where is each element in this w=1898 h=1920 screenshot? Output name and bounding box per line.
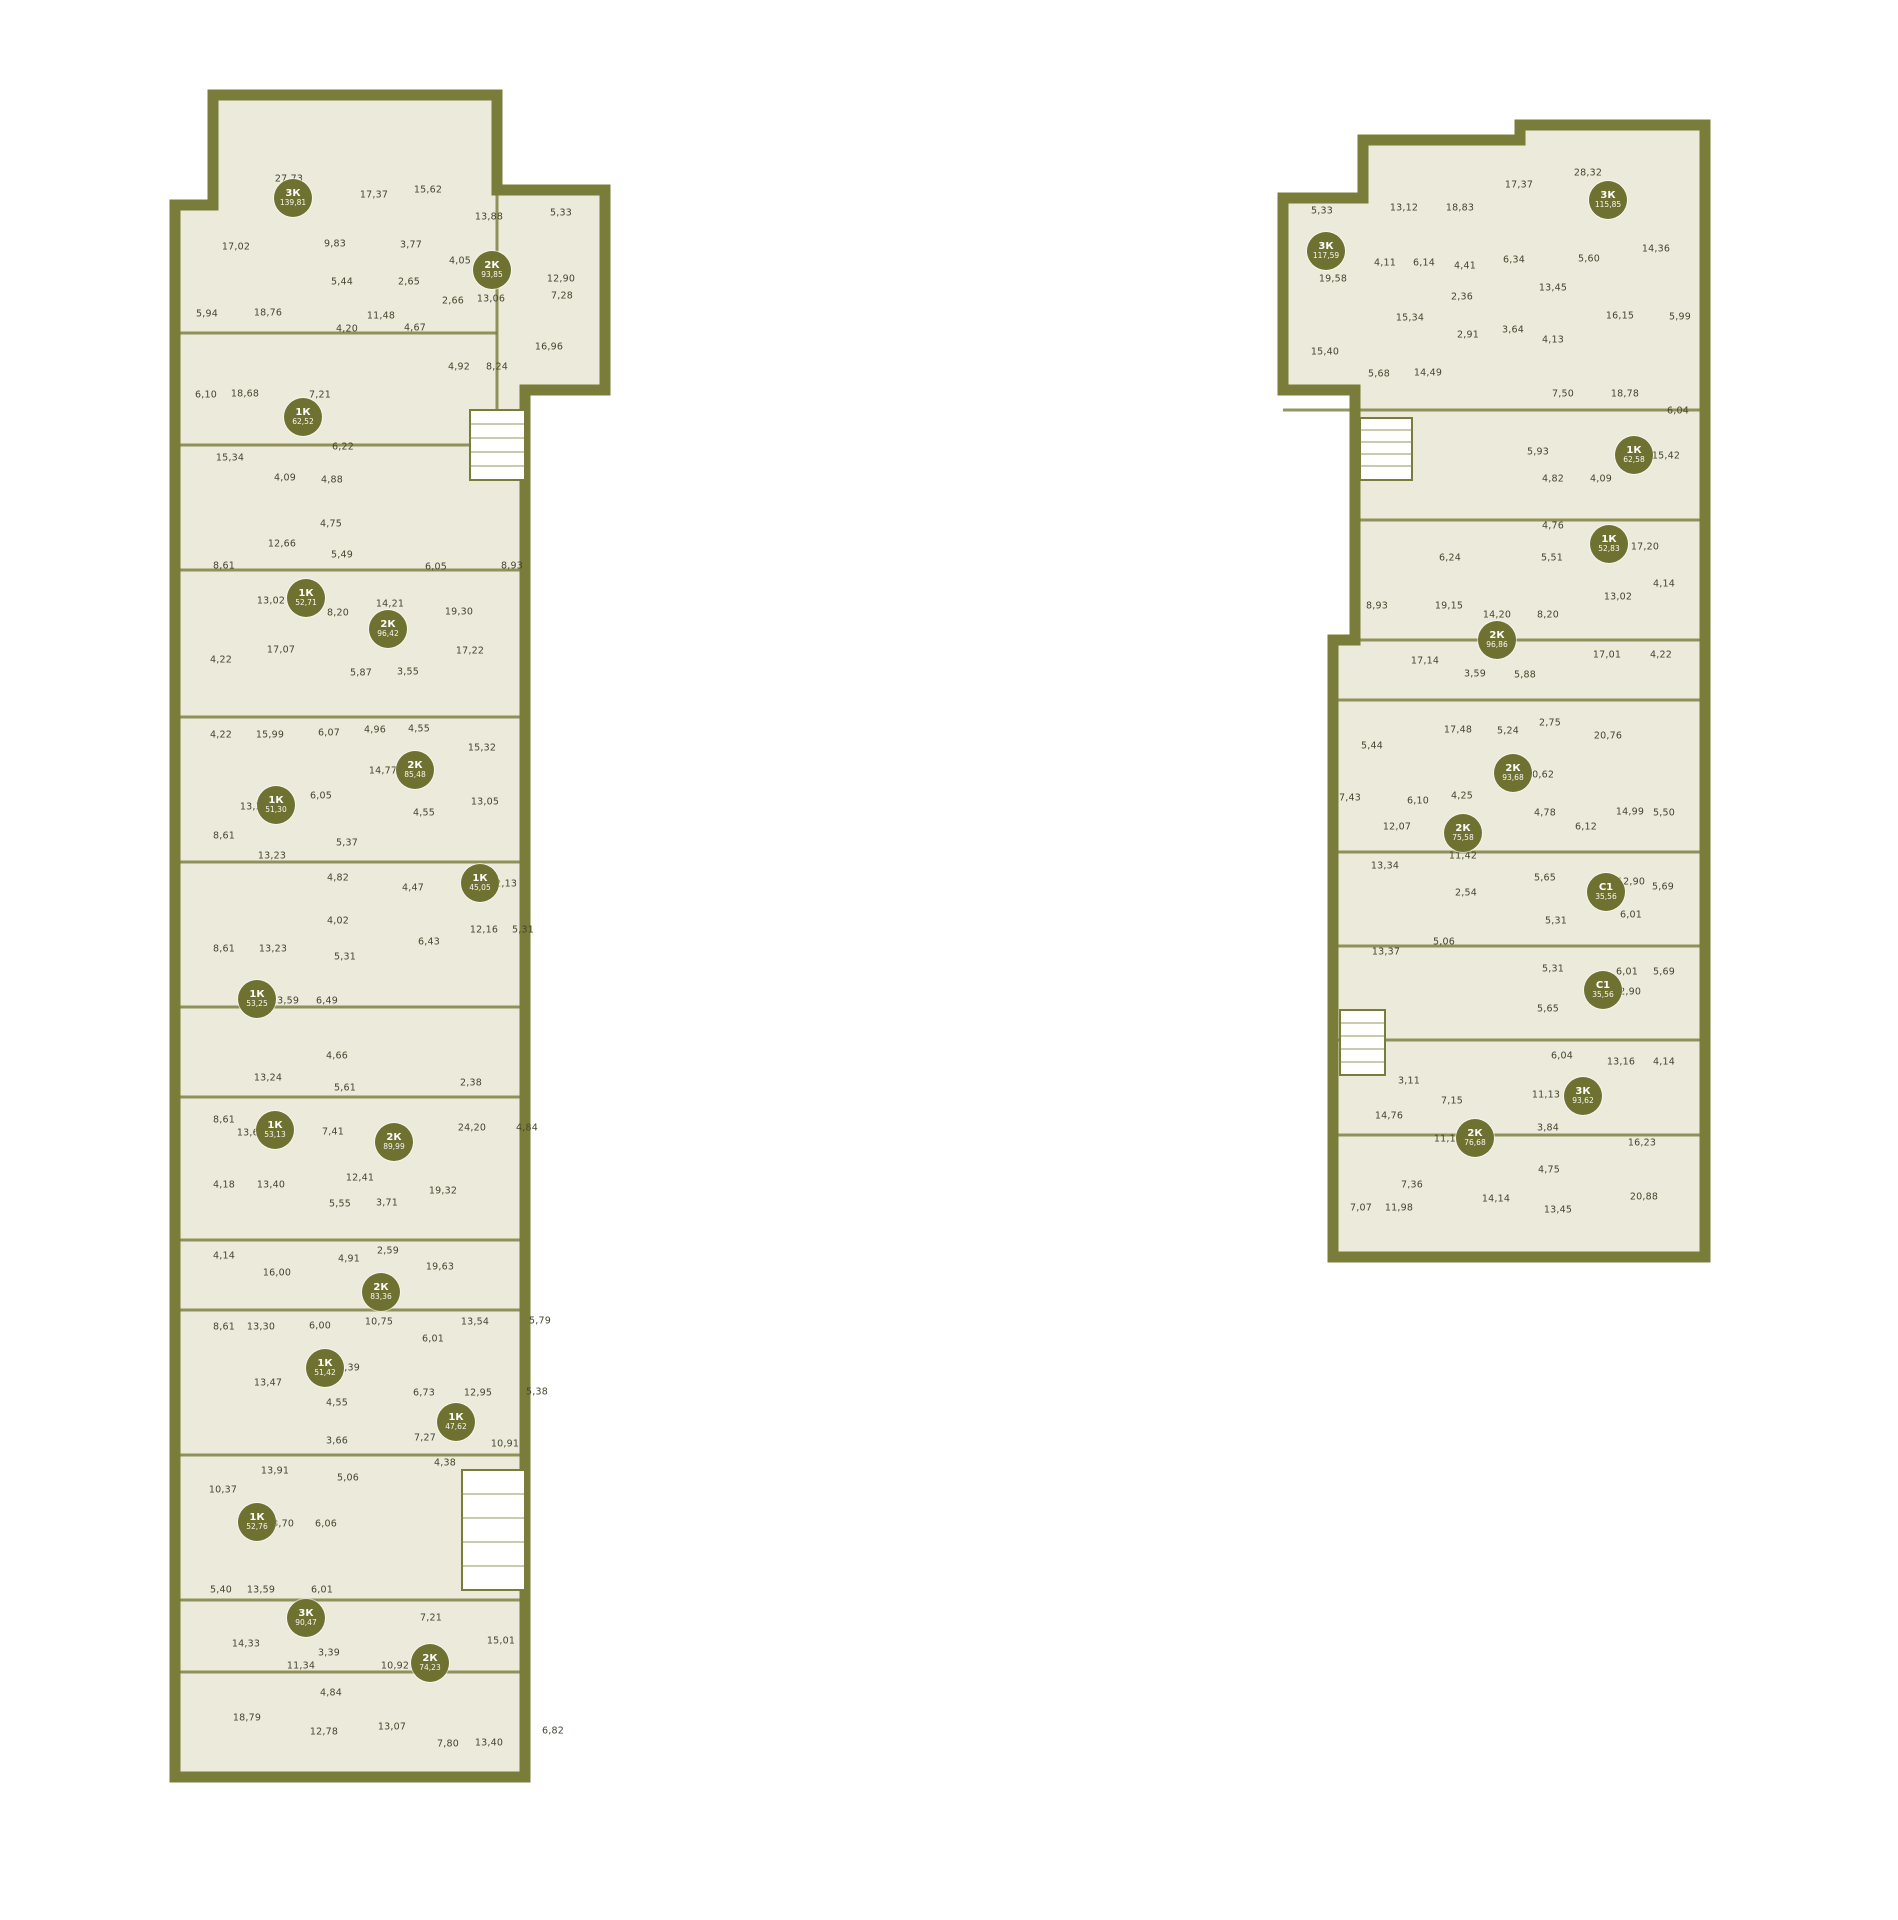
apartment-badge[interactable]: 2К85,48: [396, 751, 434, 789]
room-area-label: 5,79: [529, 1316, 551, 1327]
room-area-label: 8,93: [501, 561, 523, 572]
room-area-label: 15,62: [414, 185, 442, 196]
room-area-label: 17,48: [1444, 725, 1472, 736]
apartment-badge[interactable]: 3К117,59: [1307, 232, 1345, 270]
room-area-label: 11,42: [1449, 851, 1477, 862]
apartment-area: 93,85: [481, 271, 502, 279]
room-area-label: 2,38: [460, 1078, 482, 1089]
apartment-area: 93,68: [1502, 774, 1523, 782]
room-area-label: 6,10: [195, 390, 217, 401]
room-area-label: 11,98: [1385, 1203, 1413, 1214]
room-area-label: 18,68: [231, 389, 259, 400]
room-area-label: 5,94: [196, 309, 218, 320]
room-area-label: 6,01: [1616, 967, 1638, 978]
room-area-label: 11,34: [287, 1661, 315, 1672]
room-area-label: 6,14: [1413, 258, 1435, 269]
room-area-label: 8,61: [213, 1322, 235, 1333]
room-area-label: 14,14: [1482, 1194, 1510, 1205]
apartment-badge[interactable]: 2К93,68: [1494, 754, 1532, 792]
room-area-label: 6,06: [315, 1519, 337, 1530]
stair-core: [1360, 418, 1412, 480]
apartment-badge[interactable]: 2К96,42: [369, 610, 407, 648]
room-area-label: 4,38: [434, 1458, 456, 1469]
apartment-badge[interactable]: 3К93,62: [1564, 1077, 1602, 1115]
room-area-label: 4,22: [1650, 650, 1672, 661]
room-area-label: 15,42: [1652, 451, 1680, 462]
room-area-label: 5,99: [1669, 312, 1691, 323]
room-area-label: 3,64: [1502, 325, 1524, 336]
apartment-area: 52,76: [246, 1523, 267, 1531]
room-area-label: 3,84: [1537, 1123, 1559, 1134]
room-area-label: 17,01: [1593, 650, 1621, 661]
room-area-label: 4,05: [449, 256, 471, 267]
room-area-label: 2,59: [377, 1246, 399, 1257]
room-area-label: 7,07: [1350, 1203, 1372, 1214]
room-area-label: 17,02: [222, 242, 250, 253]
apartment-area: 85,48: [404, 771, 425, 779]
apartment-badge[interactable]: 2К89,99: [375, 1123, 413, 1161]
apartment-area: 47,62: [445, 1423, 466, 1431]
room-area-label: 14,20: [1483, 610, 1511, 621]
room-area-label: 5,65: [1534, 873, 1556, 884]
room-area-label: 17,14: [1411, 656, 1439, 667]
room-area-label: 18,83: [1446, 203, 1474, 214]
room-area-label: 8,61: [213, 561, 235, 572]
room-area-label: 8,61: [213, 1115, 235, 1126]
room-area-label: 5,37: [336, 838, 358, 849]
room-area-label: 13,40: [257, 1180, 285, 1191]
room-area-label: 4,88: [321, 475, 343, 486]
room-area-label: 10,37: [209, 1485, 237, 1496]
room-area-label: 6,07: [318, 728, 340, 739]
room-area-label: 10,91: [491, 1439, 519, 1450]
room-area-label: 15,32: [468, 743, 496, 754]
room-area-label: 13,59: [247, 1585, 275, 1596]
room-area-label: 5,87: [350, 668, 372, 679]
room-area-label: 13,05: [471, 797, 499, 808]
room-area-label: 4,92: [448, 362, 470, 373]
apartment-badge[interactable]: 3К90,47: [287, 1599, 325, 1637]
room-area-label: 14,76: [1375, 1111, 1403, 1122]
building-right-outline: [1283, 125, 1705, 1257]
room-area-label: 14,36: [1642, 244, 1670, 255]
room-area-label: 20,76: [1594, 731, 1622, 742]
room-area-label: 7,36: [1401, 1180, 1423, 1191]
room-area-label: 17,37: [1505, 180, 1533, 191]
room-area-label: 13,07: [378, 1722, 406, 1733]
room-area-label: 4,25: [1451, 791, 1473, 802]
room-area-label: 5,93: [1527, 447, 1549, 458]
room-area-label: 16,00: [263, 1268, 291, 1279]
room-area-label: 5,31: [1542, 964, 1564, 975]
room-area-label: 11,13: [1532, 1090, 1560, 1101]
apartment-area: 90,47: [295, 1619, 316, 1627]
room-area-label: 4,20: [336, 324, 358, 335]
room-area-label: 7,50: [1552, 389, 1574, 400]
room-area-label: 5,49: [331, 550, 353, 561]
apartment-area: 93,62: [1572, 1097, 1593, 1105]
room-area-label: 6,22: [332, 442, 354, 453]
room-area-label: 13,16: [1607, 1057, 1635, 1068]
apartment-area: 75,58: [1452, 834, 1473, 842]
room-area-label: 13,23: [258, 851, 286, 862]
room-area-label: 17,07: [267, 645, 295, 656]
apartment-area: 96,42: [377, 630, 398, 638]
room-area-label: 4,02: [327, 916, 349, 927]
room-area-label: 13,47: [254, 1378, 282, 1389]
apartment-badge[interactable]: 1К51,42: [306, 1349, 344, 1387]
room-area-label: 7,43: [1339, 793, 1361, 804]
room-area-label: 13,45: [1544, 1205, 1572, 1216]
room-area-label: 4,84: [516, 1123, 538, 1134]
room-area-label: 15,34: [216, 453, 244, 464]
room-area-label: 8,24: [486, 362, 508, 373]
room-area-label: 5,50: [1653, 808, 1675, 819]
room-area-label: 6,12: [1575, 822, 1597, 833]
apartment-area: 62,52: [292, 418, 313, 426]
apartment-badge[interactable]: 2К96,86: [1478, 621, 1516, 659]
room-area-label: 19,32: [429, 1186, 457, 1197]
room-area-label: 13,40: [475, 1738, 503, 1749]
room-area-label: 5,65: [1537, 1004, 1559, 1015]
room-area-label: 6,04: [1667, 406, 1689, 417]
room-area-label: 15,01: [487, 1636, 515, 1647]
room-area-label: 6,34: [1503, 255, 1525, 266]
apartment-area: 76,68: [1464, 1139, 1485, 1147]
room-area-label: 6,00: [309, 1321, 331, 1332]
room-area-label: 13,91: [261, 1466, 289, 1477]
room-area-label: 3,11: [1398, 1076, 1420, 1087]
room-area-label: 14,21: [376, 599, 404, 610]
apartment-badge[interactable]: 2К76,68: [1456, 1119, 1494, 1157]
room-area-label: 19,30: [445, 607, 473, 618]
room-area-label: 3,39: [318, 1648, 340, 1659]
room-area-label: 20,88: [1630, 1192, 1658, 1203]
room-area-label: 16,96: [535, 342, 563, 353]
room-area-label: 8,20: [1537, 610, 1559, 621]
room-area-label: 5,69: [1653, 967, 1675, 978]
room-area-label: 4,55: [413, 808, 435, 819]
apartment-badge[interactable]: 1К47,62: [437, 1403, 475, 1441]
room-area-label: 13,88: [475, 212, 503, 223]
room-area-label: 13,12: [1390, 203, 1418, 214]
room-area-label: 2,54: [1455, 888, 1477, 899]
room-area-label: 24,20: [458, 1123, 486, 1134]
room-area-label: 2,66: [442, 296, 464, 307]
room-area-label: 14,49: [1414, 368, 1442, 379]
apartment-area: 52,71: [295, 599, 316, 607]
apartment-badge[interactable]: 1К52,71: [287, 579, 325, 617]
room-area-label: 14,99: [1616, 807, 1644, 818]
room-area-label: 7,41: [322, 1127, 344, 1138]
apartment-area: 51,30: [265, 806, 286, 814]
room-area-label: 4,14: [1653, 1057, 1675, 1068]
apartment-badge[interactable]: 1К53,25: [238, 980, 276, 1018]
apartment-badge[interactable]: 2К74,23: [411, 1644, 449, 1682]
apartment-area: 35,56: [1595, 893, 1616, 901]
room-area-label: 4,55: [408, 724, 430, 735]
room-area-label: 13,30: [247, 1322, 275, 1333]
apartment-badge[interactable]: 1К53,13: [256, 1111, 294, 1149]
room-area-label: 12,90: [547, 274, 575, 285]
room-area-label: 5,68: [1368, 369, 1390, 380]
room-area-label: 10,75: [365, 1317, 393, 1328]
room-area-label: 13,23: [259, 944, 287, 955]
room-area-label: 2,65: [398, 277, 420, 288]
apartment-badge[interactable]: С135,56: [1587, 873, 1625, 911]
room-area-label: 4,66: [326, 1051, 348, 1062]
apartment-area: 115,85: [1595, 201, 1621, 209]
stair-core: [1340, 1010, 1385, 1075]
room-area-label: 4,41: [1454, 261, 1476, 272]
room-area-label: 5,33: [550, 208, 572, 219]
room-area-label: 3,77: [400, 240, 422, 251]
apartment-area: 45,05: [469, 884, 490, 892]
room-area-label: 5,31: [1545, 916, 1567, 927]
room-area-label: 4,82: [327, 873, 349, 884]
room-area-label: 13,37: [1372, 947, 1400, 958]
room-area-label: 5,88: [1514, 670, 1536, 681]
apartment-area: 117,59: [1313, 252, 1339, 260]
room-area-label: 5,33: [1311, 206, 1333, 217]
room-area-label: 4,22: [210, 655, 232, 666]
room-area-label: 4,76: [1542, 521, 1564, 532]
room-area-label: 5,61: [334, 1083, 356, 1094]
room-area-label: 15,34: [1396, 313, 1424, 324]
room-area-label: 12,07: [1383, 822, 1411, 833]
room-area-label: 5,44: [331, 277, 353, 288]
apartment-area: 62,58: [1623, 456, 1644, 464]
room-area-label: 19,63: [426, 1262, 454, 1273]
room-area-label: 13,02: [1604, 592, 1632, 603]
room-area-label: 4,14: [213, 1251, 235, 1262]
room-area-label: 17,37: [360, 190, 388, 201]
room-area-label: 15,99: [256, 730, 284, 741]
apartment-badge[interactable]: 3К115,85: [1589, 181, 1627, 219]
room-area-label: 14,77: [369, 766, 397, 777]
room-area-label: 5,31: [512, 925, 534, 936]
room-area-label: 13,24: [254, 1073, 282, 1084]
room-area-label: 3,55: [397, 667, 419, 678]
room-area-label: 6,49: [316, 996, 338, 1007]
room-area-label: 7,28: [551, 291, 573, 302]
apartment-badge[interactable]: 1К62,52: [284, 398, 322, 436]
room-area-label: 28,32: [1574, 168, 1602, 179]
room-area-label: 3,66: [326, 1436, 348, 1447]
room-area-label: 6,73: [413, 1388, 435, 1399]
room-area-label: 18,79: [233, 1713, 261, 1724]
stair-core: [470, 410, 525, 480]
room-area-label: 6,24: [1439, 553, 1461, 564]
room-area-label: 4,82: [1542, 474, 1564, 485]
room-area-label: 6,04: [1551, 1051, 1573, 1062]
room-area-label: 7,15: [1441, 1096, 1463, 1107]
room-area-label: 12,41: [346, 1173, 374, 1184]
apartment-area: 35,56: [1592, 991, 1613, 999]
room-area-label: 4,14: [1653, 579, 1675, 590]
apartment-badge[interactable]: С135,56: [1584, 971, 1622, 1009]
room-area-label: 19,58: [1319, 274, 1347, 285]
room-area-label: 6,05: [310, 791, 332, 802]
stair-core: [462, 1470, 525, 1590]
apartment-area: 139,81: [280, 199, 306, 207]
room-area-label: 6,82: [542, 1726, 564, 1737]
room-area-label: 5,69: [1652, 882, 1674, 893]
room-area-label: 7,80: [437, 1739, 459, 1750]
room-area-label: 4,75: [1538, 1165, 1560, 1176]
room-area-label: 13,02: [257, 596, 285, 607]
apartment-badge[interactable]: 1К52,76: [238, 1503, 276, 1541]
room-area-label: 12,66: [268, 539, 296, 550]
room-area-label: 2,91: [1457, 330, 1479, 341]
apartment-area: 53,25: [246, 1000, 267, 1008]
room-area-label: 4,13: [1542, 335, 1564, 346]
floor-plan-sheet: 27,7317,3715,6213,8817,029,833,774,055,4…: [0, 0, 1898, 1920]
apartment-badge[interactable]: 2К93,85: [473, 251, 511, 289]
room-area-label: 12,78: [310, 1727, 338, 1738]
room-area-label: 4,47: [402, 883, 424, 894]
room-area-label: 17,20: [1631, 542, 1659, 553]
room-area-label: 7,21: [420, 1613, 442, 1624]
room-area-label: 16,23: [1628, 1138, 1656, 1149]
room-area-label: 13,54: [461, 1317, 489, 1328]
room-area-label: 6,05: [425, 562, 447, 573]
room-area-label: 9,83: [324, 239, 346, 250]
room-area-label: 7,21: [309, 390, 331, 401]
room-area-label: 4,09: [274, 473, 296, 484]
room-area-label: 15,40: [1311, 347, 1339, 358]
room-area-label: 18,78: [1611, 389, 1639, 400]
apartment-area: 96,86: [1486, 641, 1507, 649]
room-area-label: 16,15: [1606, 311, 1634, 322]
room-area-label: 4,91: [338, 1254, 360, 1265]
apartment-area: 52,83: [1598, 545, 1619, 553]
room-area-label: 8,61: [213, 944, 235, 955]
apartment-area: 51,42: [314, 1369, 335, 1377]
room-area-label: 4,55: [326, 1398, 348, 1409]
room-area-label: 4,18: [213, 1180, 235, 1191]
apartment-badge[interactable]: 2К83,36: [362, 1273, 400, 1311]
room-area-label: 5,31: [334, 952, 356, 963]
room-area-label: 17,22: [456, 646, 484, 657]
room-area-label: 2,75: [1539, 718, 1561, 729]
room-area-label: 4,75: [320, 519, 342, 530]
room-area-label: 4,96: [364, 725, 386, 736]
room-area-label: 4,11: [1374, 258, 1396, 269]
room-area-label: 18,76: [254, 308, 282, 319]
apartment-area: 74,23: [419, 1664, 440, 1672]
room-area-label: 13,06: [477, 294, 505, 305]
room-area-label: 5,51: [1541, 553, 1563, 564]
room-area-label: 6,43: [418, 937, 440, 948]
room-area-label: 3,59: [1464, 669, 1486, 680]
apartment-area: 53,13: [264, 1131, 285, 1139]
apartment-badge[interactable]: 1К45,05: [461, 864, 499, 902]
room-area-label: 5,38: [526, 1387, 548, 1398]
room-area-label: 6,10: [1407, 796, 1429, 807]
room-area-label: 11,48: [367, 311, 395, 322]
room-area-label: 2,36: [1451, 292, 1473, 303]
room-area-label: 6,01: [1620, 910, 1642, 921]
room-area-label: 6,01: [311, 1585, 333, 1596]
room-area-label: 13,45: [1539, 283, 1567, 294]
room-area-label: 12,95: [464, 1388, 492, 1399]
room-area-label: 5,06: [1433, 937, 1455, 948]
room-area-label: 10,92: [381, 1661, 409, 1672]
room-area-label: 8,61: [213, 831, 235, 842]
apartment-badge[interactable]: 1К62,58: [1615, 436, 1653, 474]
room-area-label: 5,06: [337, 1473, 359, 1484]
room-area-label: 19,15: [1435, 601, 1463, 612]
room-area-label: 7,27: [414, 1433, 436, 1444]
room-area-label: 5,60: [1578, 254, 1600, 265]
room-area-label: 5,40: [210, 1585, 232, 1596]
room-area-label: 4,09: [1590, 474, 1612, 485]
room-area-label: 3,71: [376, 1198, 398, 1209]
room-area-label: 4,22: [210, 730, 232, 741]
apartment-badge[interactable]: 1К52,83: [1590, 525, 1628, 563]
apartment-badge[interactable]: 1К51,30: [257, 786, 295, 824]
room-area-label: 4,78: [1534, 808, 1556, 819]
floor-plan-drawing: [0, 0, 1898, 1920]
room-area-label: 12,16: [470, 925, 498, 936]
room-area-label: 5,44: [1361, 741, 1383, 752]
room-area-label: 14,33: [232, 1639, 260, 1650]
apartment-badge[interactable]: 3К139,81: [274, 179, 312, 217]
room-area-label: 5,55: [329, 1199, 351, 1210]
room-area-label: 5,24: [1497, 726, 1519, 737]
room-area-label: 6,01: [422, 1334, 444, 1345]
room-area-label: 4,84: [320, 1688, 342, 1699]
room-area-label: 8,93: [1366, 601, 1388, 612]
room-area-label: 8,20: [327, 608, 349, 619]
room-area-label: 13,34: [1371, 861, 1399, 872]
apartment-area: 89,99: [383, 1143, 404, 1151]
apartment-badge[interactable]: 2К75,58: [1444, 814, 1482, 852]
room-area-label: 4,67: [404, 323, 426, 334]
apartment-area: 83,36: [370, 1293, 391, 1301]
